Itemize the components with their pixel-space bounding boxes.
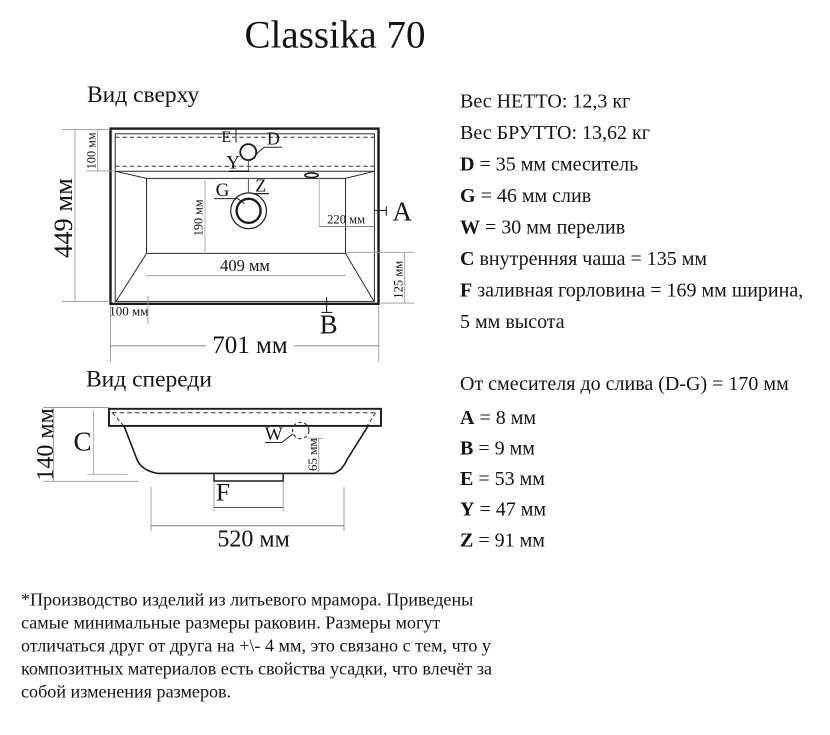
- svg-text:Classika 70: Classika 70: [245, 13, 426, 56]
- svg-text:C: C: [74, 427, 92, 457]
- svg-text:65 мм: 65 мм: [305, 438, 320, 471]
- svg-text:Y: Y: [226, 152, 240, 173]
- svg-text:Вид сверху: Вид сверху: [87, 82, 200, 108]
- svg-text:композитных материалов есть св: композитных материалов есть свойства уса…: [21, 659, 492, 679]
- svg-text:D = 35 мм смеситель: D = 35 мм смеситель: [460, 154, 638, 176]
- svg-text:190 мм: 190 мм: [192, 199, 206, 236]
- svg-text:W: W: [265, 424, 283, 445]
- svg-text:A = 8 мм: A = 8 мм: [460, 407, 536, 429]
- svg-text:E: E: [221, 129, 231, 146]
- svg-text:От смесителя до слива (D-G) =: От смесителя до слива (D-G) = 170 мм: [460, 373, 789, 395]
- svg-text:140 мм: 140 мм: [33, 408, 59, 480]
- svg-text:520 мм: 520 мм: [217, 527, 289, 553]
- svg-text:D: D: [267, 129, 280, 149]
- svg-text:G: G: [216, 180, 230, 201]
- svg-text:701 мм: 701 мм: [212, 332, 288, 359]
- svg-text:E = 53 мм: E = 53 мм: [460, 468, 545, 490]
- svg-text:Z = 91 мм: Z = 91 мм: [460, 529, 545, 551]
- svg-text:самые минимальные размеры рако: самые минимальные размеры раковин. Разме…: [21, 613, 440, 633]
- svg-text:Вес НЕТТО: 12,3 кг: Вес НЕТТО: 12,3 кг: [460, 91, 630, 113]
- svg-text:409 мм: 409 мм: [220, 256, 270, 275]
- svg-text:Z: Z: [255, 176, 266, 196]
- svg-text:B: B: [320, 309, 338, 339]
- svg-text:G = 46 мм слив: G = 46 мм слив: [460, 185, 591, 207]
- svg-text:F заливная горловина = 169 мм: F заливная горловина = 169 мм ширина,: [460, 280, 803, 302]
- svg-text:125 мм: 125 мм: [391, 261, 405, 299]
- svg-text:220 мм: 220 мм: [327, 213, 365, 227]
- svg-text:*Производство изделий из литье: *Производство изделий из литьевого мрамо…: [21, 590, 473, 610]
- svg-text:A: A: [393, 197, 413, 227]
- svg-text:100 мм: 100 мм: [85, 132, 99, 169]
- svg-text:Вид спереди: Вид спереди: [86, 367, 212, 393]
- svg-text:100 мм: 100 мм: [109, 304, 148, 319]
- svg-text:C внутренняя чаша = 135 мм: C внутренняя чаша = 135 мм: [460, 248, 707, 270]
- svg-text:отличаться друг от друга на +\: отличаться друг от друга на +\- 4 мм, эт…: [21, 636, 491, 656]
- svg-text:F: F: [216, 478, 230, 507]
- svg-text:W = 30 мм перелив: W = 30 мм перелив: [460, 217, 625, 239]
- svg-text:449 мм: 449 мм: [48, 178, 78, 258]
- svg-text:5 мм высота: 5 мм высота: [460, 311, 565, 333]
- svg-text:Y = 47 мм: Y = 47 мм: [460, 499, 546, 521]
- svg-text:B = 9 мм: B = 9 мм: [460, 437, 535, 459]
- svg-text:Вес БРУТТО: 13,62 кг: Вес БРУТТО: 13,62 кг: [460, 122, 650, 144]
- svg-text:собой изменения размеров.: собой изменения размеров.: [21, 682, 231, 702]
